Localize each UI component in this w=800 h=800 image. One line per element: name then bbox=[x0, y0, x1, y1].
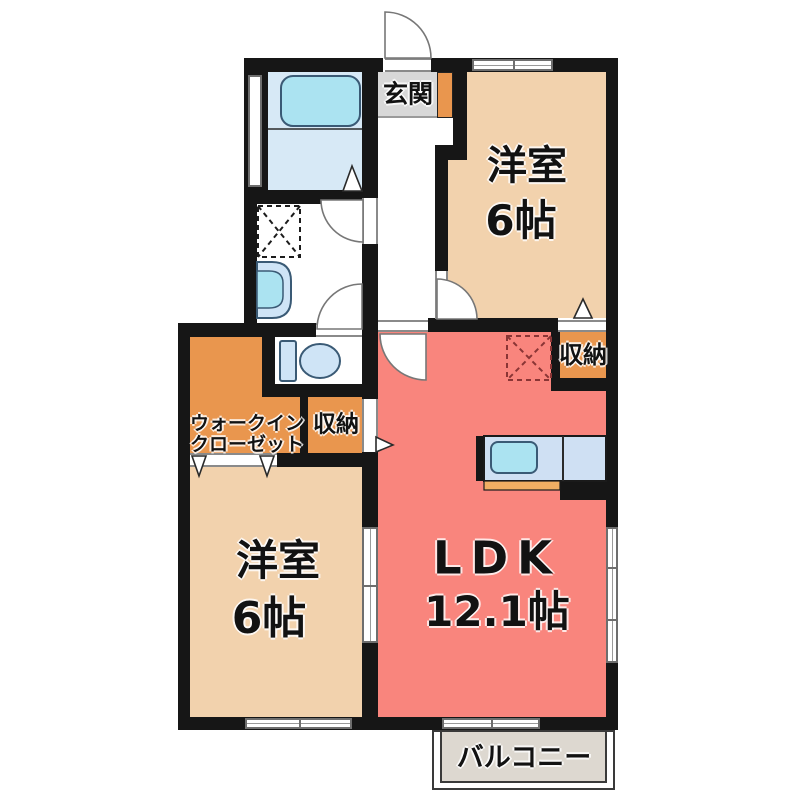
bedroom-bottom-size: 6帖 bbox=[232, 597, 307, 641]
opening-entrance bbox=[385, 58, 431, 72]
bedroom-bottom-name: 洋室 bbox=[236, 540, 320, 582]
floorplan-canvas: 玄関 洋室 6帖 収納 ウォークイン クローゼット 収納 LDK 12.1帖 洋… bbox=[0, 0, 800, 800]
window-bathroom bbox=[248, 75, 262, 187]
kitchen-wall-stub-right bbox=[560, 481, 606, 500]
opening-ldk-door bbox=[378, 320, 428, 332]
washroom-door-swing bbox=[321, 200, 363, 242]
sliding-door-bedroom-ldk bbox=[362, 527, 378, 643]
storage-top-right-label: 収納 bbox=[559, 343, 607, 367]
wall-washroom-wic bbox=[178, 323, 316, 337]
storage-center-label: 収納 bbox=[313, 414, 359, 437]
opening-storage-center-door bbox=[362, 399, 378, 452]
washbasin bbox=[257, 262, 291, 318]
ldk-name: LDK bbox=[433, 536, 561, 581]
window-ldk-right bbox=[606, 527, 618, 663]
wall-left-washroom bbox=[244, 190, 257, 337]
wall-bottom bbox=[178, 717, 618, 730]
wall-hall-upper bbox=[362, 58, 378, 198]
toilet-room-floor bbox=[275, 334, 363, 384]
room-bedroom-top-floor bbox=[467, 72, 606, 318]
ldk-size: 12.1帖 bbox=[424, 591, 570, 633]
wall-bedroom-top-left bbox=[435, 160, 448, 271]
washing-machine-space bbox=[258, 206, 300, 257]
room-bedroom-bottom-floor bbox=[190, 467, 362, 717]
wall-toilet-bottom bbox=[262, 384, 367, 397]
wall-storage-top-bottom bbox=[551, 378, 606, 391]
entrance-door-swing bbox=[385, 12, 431, 58]
window-bedroom-top bbox=[472, 59, 553, 71]
opening-storage-top bbox=[558, 320, 606, 332]
wall-hall-bottom bbox=[362, 643, 378, 717]
wall-entrance-jog bbox=[435, 145, 467, 160]
window-balcony-slider bbox=[442, 718, 540, 729]
opening-washroom-door bbox=[362, 198, 378, 244]
window-bedroom-bottom bbox=[245, 718, 352, 729]
entrance-label: 玄関 bbox=[383, 82, 433, 107]
wall-left-lower bbox=[178, 323, 190, 730]
wic-label-line1: ウォークイン bbox=[190, 415, 304, 434]
wall-bedroom-top-bottom bbox=[428, 318, 558, 332]
bathroom-floor bbox=[268, 72, 362, 197]
bedroom-top-name: 洋室 bbox=[487, 146, 567, 186]
bedroom-top-size: 6帖 bbox=[485, 200, 556, 242]
wall-bath-washroom bbox=[257, 190, 378, 204]
opening-bedroom-top-door bbox=[435, 271, 448, 319]
balcony-label: バルコニー bbox=[457, 745, 591, 772]
room-bedroom-top-floor-ext bbox=[448, 160, 467, 318]
kitchen-wall-stub-left bbox=[476, 436, 484, 481]
opening-toilet-door bbox=[316, 323, 362, 337]
wic-label-line2: クローゼット bbox=[190, 436, 304, 455]
shoe-cabinet bbox=[437, 72, 453, 118]
